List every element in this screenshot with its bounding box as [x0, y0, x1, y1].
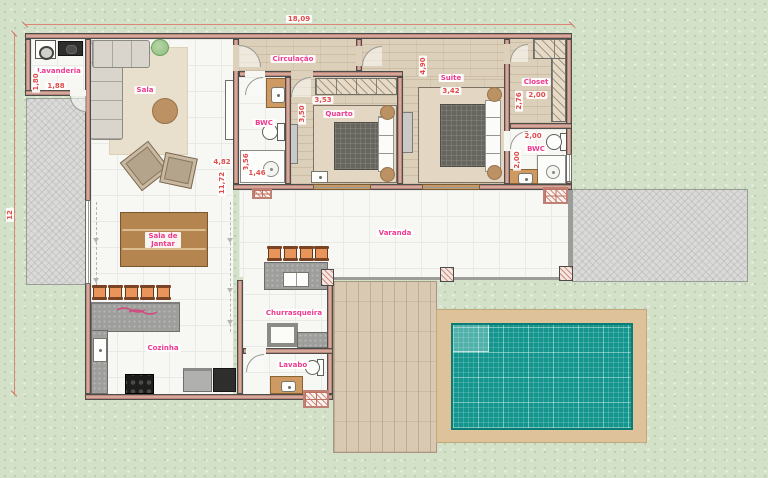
sofa-top-arm — [92, 40, 150, 68]
bar-stool — [315, 247, 328, 260]
bedside-pouf — [487, 87, 502, 102]
pool — [451, 323, 633, 430]
wall-cozinha-churrasqueira — [237, 280, 243, 394]
lavabo-vanity — [270, 376, 303, 394]
room-label-quarto: Quarto — [323, 110, 354, 118]
room-label-bwc-left: BWC — [253, 119, 275, 127]
room-label-bwc-right: BWC — [525, 145, 547, 153]
room-label-circulacao: Circulação — [271, 55, 316, 63]
wardrobe — [315, 78, 397, 95]
arrow-down-icon — [227, 288, 233, 293]
room-label-cozinha: Cozinha — [145, 344, 180, 352]
toilet — [545, 132, 568, 150]
planter-box — [303, 390, 329, 408]
dim-bwc-right-depth: 2,00 — [513, 149, 521, 170]
room-label-suite: Suite — [439, 74, 464, 82]
bedside-pouf — [380, 105, 395, 120]
wood-deck — [333, 281, 437, 453]
side-table — [311, 171, 328, 183]
dim-quarto-depth: 3,50 — [298, 103, 306, 124]
room-label-closet: Closet — [522, 78, 551, 86]
wall-exterior-top — [25, 33, 572, 39]
dishwasher — [183, 368, 212, 392]
refrigerator — [213, 368, 236, 392]
dim-sala-width: 4,82 — [211, 158, 232, 166]
bar-stool — [109, 286, 122, 299]
bar-stool — [93, 286, 106, 299]
bwc-left-vanity — [266, 78, 286, 108]
closet-shelves-top — [533, 39, 566, 59]
bedside-pouf — [380, 167, 395, 182]
patio-paving-right — [572, 189, 748, 282]
wall-lavanderia-left — [25, 39, 31, 96]
dim-bwc-left-width: 1,46 — [246, 169, 267, 177]
floor-plan: Lavanderia Sala Circulação BWC Quarto Su… — [0, 0, 768, 478]
armchair — [159, 152, 198, 189]
dim-quarto-width: 3,53 — [312, 96, 333, 104]
dim-site-width: 18,09 — [286, 15, 312, 23]
projection-line — [230, 202, 231, 332]
bar-stool — [157, 286, 170, 299]
bar-stool — [284, 247, 297, 260]
wall-bwc-quarto — [285, 77, 291, 184]
planter-box — [252, 188, 272, 199]
round-ottoman — [152, 98, 178, 124]
sliding-door-quarto — [313, 184, 371, 190]
dim-sala-depth: 11,72 — [218, 170, 226, 196]
dimension-line-left — [14, 33, 15, 394]
window-left-wall — [85, 200, 91, 284]
shower — [537, 155, 566, 184]
arrow-down-icon — [93, 278, 99, 283]
window-bwc-right — [566, 154, 572, 182]
laundry-sink-counter — [58, 41, 83, 56]
bar-stool — [125, 286, 138, 299]
dim-lavanderia-depth: 1,80 — [32, 71, 40, 92]
bar-stool — [141, 286, 154, 299]
arrow-down-icon — [93, 238, 99, 243]
room-label-lavanderia: Lavanderia — [35, 67, 83, 75]
kitchen-sink-cabinet — [93, 338, 107, 362]
sliding-door-suite — [422, 184, 480, 190]
dim-suite-width: 3,42 — [440, 87, 461, 95]
dim-closet-depth: 2,76 — [515, 90, 523, 111]
side-paving-left — [26, 98, 86, 285]
bbq-side-counter — [297, 332, 328, 348]
room-label-lavabo: Lavabo — [277, 361, 309, 369]
counter-decor-squiggle — [116, 305, 158, 315]
bedside-pouf — [487, 165, 502, 180]
closet-shelves-right — [551, 58, 566, 122]
bar-stool — [268, 247, 281, 260]
wall-closet-bwc — [510, 123, 572, 129]
dim-lavanderia-width: 1,88 — [45, 82, 66, 90]
arrow-down-icon — [227, 238, 233, 243]
arrow-down-icon — [227, 320, 233, 325]
room-label-varanda: Varanda — [377, 229, 414, 237]
bar-stool — [300, 247, 313, 260]
dim-closet-width: 2,00 — [526, 91, 547, 99]
bbq-sink — [283, 272, 309, 287]
varanda-column — [321, 269, 334, 286]
washing-machine — [35, 40, 56, 59]
wall-quarto-suite — [397, 77, 403, 184]
room-label-churrasqueira: Churrasqueira — [264, 309, 324, 317]
bbq-grill — [267, 323, 298, 347]
bwc-right-vanity — [509, 169, 538, 184]
door-opening-suite — [356, 46, 362, 66]
dim-site-height: 12 — [6, 208, 14, 222]
dim-suite-depth: 4,90 — [419, 55, 427, 76]
wall-lavabo-right — [327, 284, 333, 394]
dimension-line-top — [25, 24, 572, 25]
room-label-sala: Sala — [135, 86, 156, 94]
wall-bedrooms-bottom — [233, 184, 572, 190]
potted-plant — [151, 39, 169, 56]
room-label-sala-de-jantar: Sala de Jantar — [145, 232, 181, 248]
wall-exterior-bottom — [85, 394, 333, 400]
dim-bwc-right-width: 2,00 — [522, 132, 543, 140]
planter-box — [543, 187, 568, 204]
pool-steps — [453, 325, 489, 352]
stove — [125, 374, 154, 394]
varanda-column — [440, 267, 454, 282]
dresser — [402, 112, 413, 153]
varanda-column — [559, 266, 573, 281]
